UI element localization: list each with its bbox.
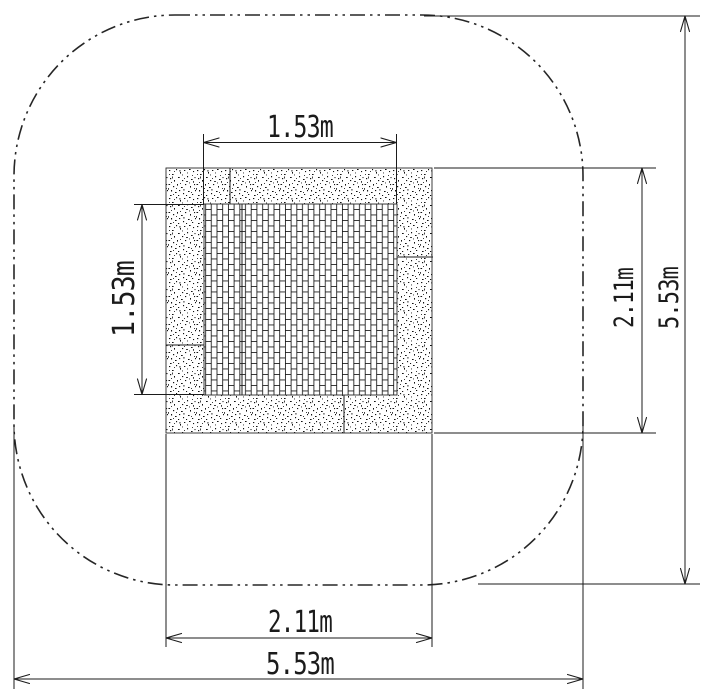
dim-label-paver-height: 2.11m [609,268,640,328]
dim-label-overall-width: 5.53m [266,647,334,682]
dim-label-mat-width: 1.53m [267,110,333,145]
dim-overall-width: 5.53m [14,426,583,689]
dim-label-overall-height: 5.53m [654,267,685,329]
dim-paver-height: 2.11m [434,168,656,433]
equipment-mat-square [204,204,397,395]
technical-drawing-page: 1.53m 1.53m 2.11m 5.53m 2.11m [0,0,707,698]
dim-overall-height: 5.53m [424,16,700,584]
dim-paver-width: 2.11m [166,434,432,647]
plan-drawing-svg: 1.53m 1.53m 2.11m 5.53m 2.11m [0,0,707,698]
dim-label-mat-height: 1.53m [107,261,142,337]
dim-label-paver-width: 2.11m [268,605,332,640]
